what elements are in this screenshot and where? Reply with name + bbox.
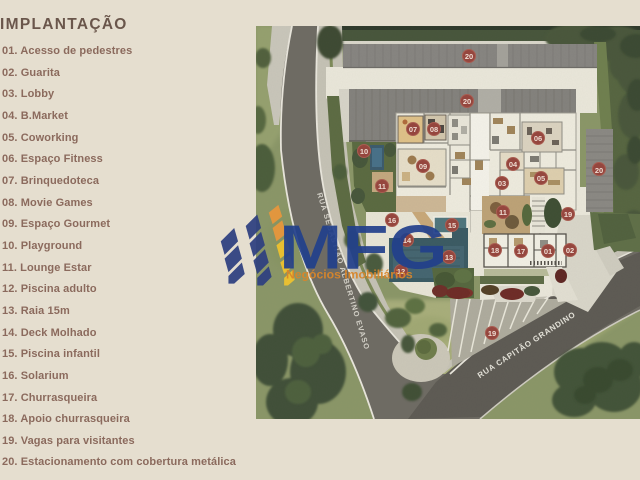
svg-text:Negócios Imobiliários: Negócios Imobiliários bbox=[286, 268, 413, 282]
